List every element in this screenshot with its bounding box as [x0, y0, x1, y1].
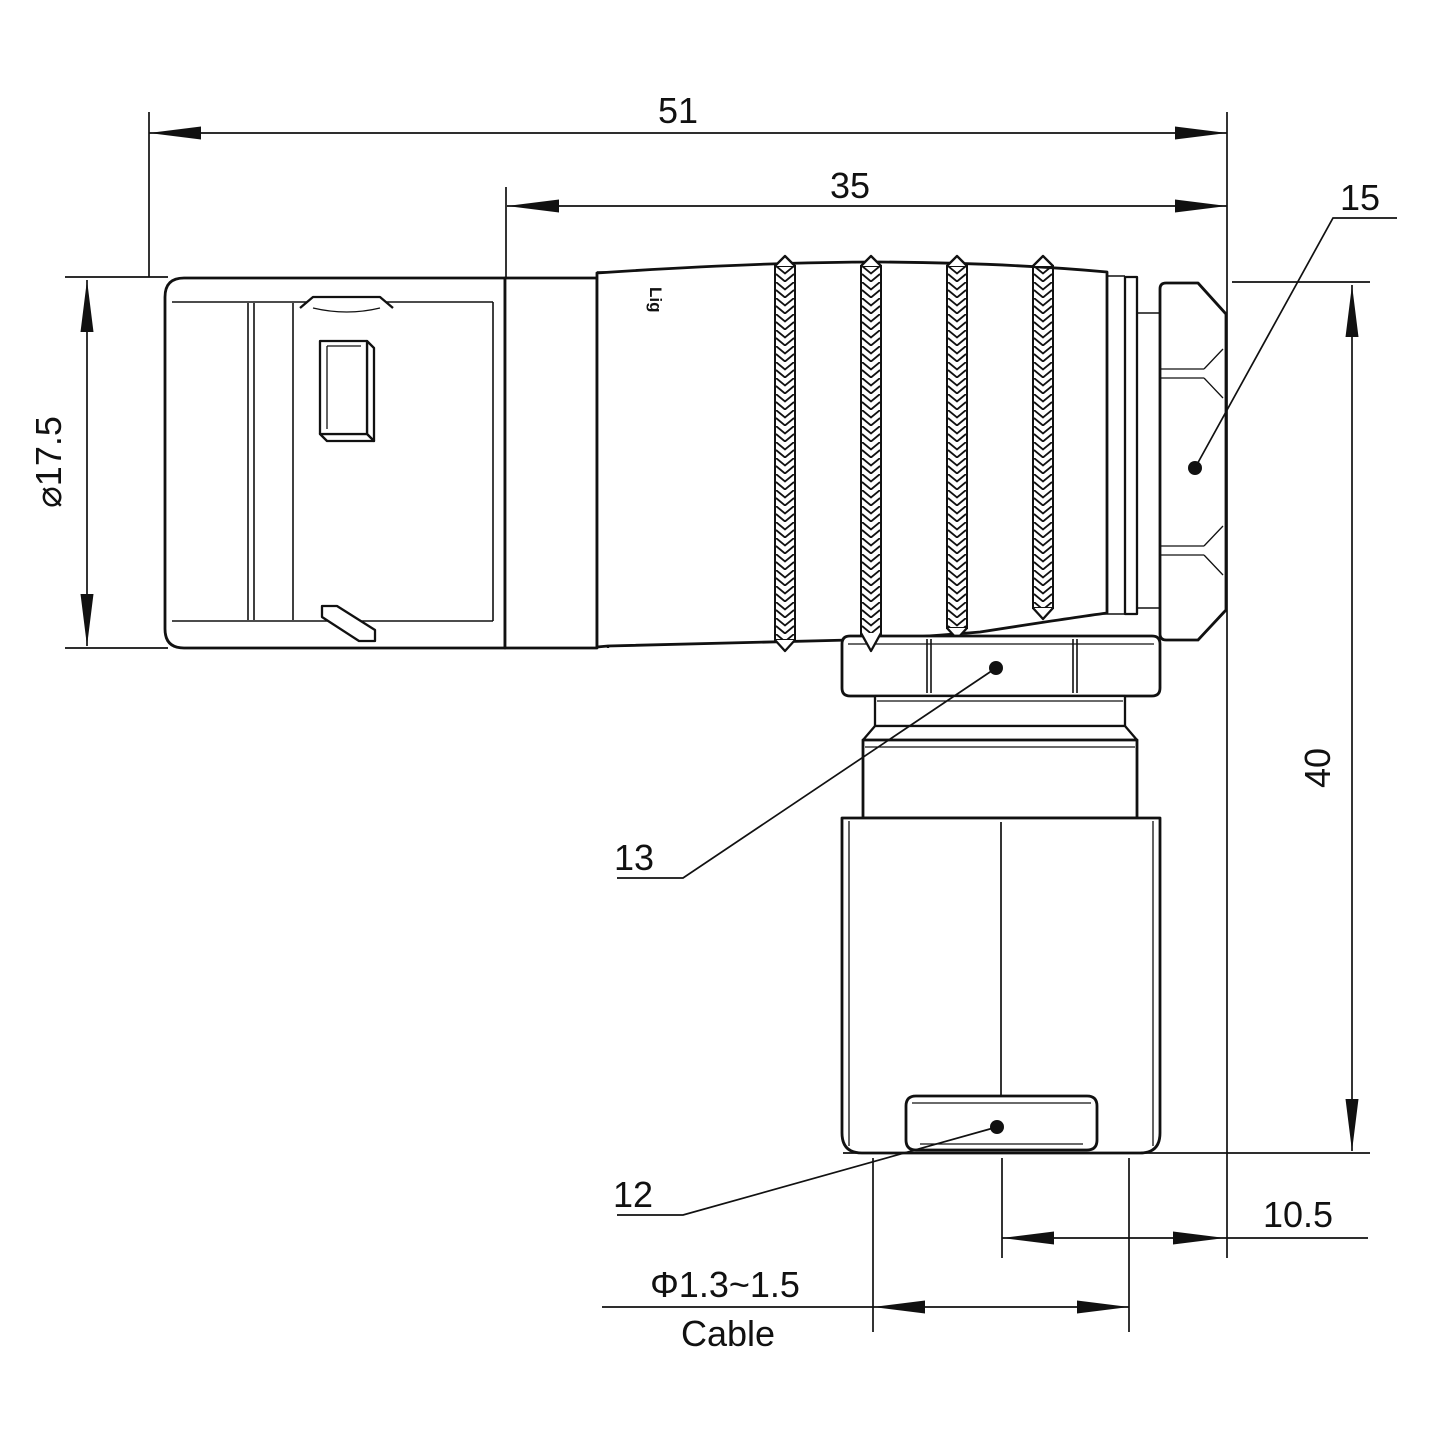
- dim-offset: 10.5: [1002, 1194, 1368, 1238]
- mid-body: [505, 272, 608, 648]
- knurl-ring-4: [1033, 256, 1053, 619]
- latch-window: [320, 341, 374, 441]
- connector-elbow-drawing: Lightany: [0, 0, 1440, 1440]
- ext-diameter: [65, 277, 168, 648]
- body-brand-mark: Lig: [646, 287, 665, 313]
- dim-diameter: ⌀17.5: [28, 280, 87, 646]
- latch-release-bump: [300, 297, 393, 308]
- dim-label-35: 35: [830, 165, 870, 206]
- back-nut: [1103, 276, 1226, 640]
- dim-label-51: 51: [658, 90, 698, 131]
- dim-label-cable: Cable: [681, 1313, 775, 1354]
- leader-label-15: 15: [1340, 177, 1380, 218]
- knurl-ring-2: [861, 256, 881, 640]
- knurled-grip: Lig: [597, 256, 1107, 651]
- mating-shell: [165, 278, 505, 648]
- dim-cable: Φ1.3~1.5 Cable: [602, 1264, 1129, 1354]
- dim-grip-length: 35: [507, 165, 1227, 206]
- dim-label-40: 40: [1297, 748, 1338, 788]
- leader-label-12: 12: [613, 1174, 653, 1215]
- connector-body: Lig: [165, 256, 1370, 1153]
- leader-label-13: 13: [614, 837, 654, 878]
- ext-cable: [873, 1158, 1129, 1332]
- dim-label-diameter: ⌀17.5: [28, 416, 69, 508]
- neck: [863, 696, 1137, 740]
- technical-drawing-page: Lightany: [0, 0, 1440, 1440]
- dim-height: 40: [1297, 285, 1352, 1151]
- dim-label-cable-diameter: Φ1.3~1.5: [650, 1264, 800, 1305]
- dim-overall-length: 51: [149, 90, 1227, 133]
- knurl-ring-3: [947, 256, 967, 639]
- dim-label-105: 10.5: [1263, 1194, 1333, 1235]
- upper-body: [863, 740, 1137, 818]
- knurl-ring-1: [775, 256, 795, 651]
